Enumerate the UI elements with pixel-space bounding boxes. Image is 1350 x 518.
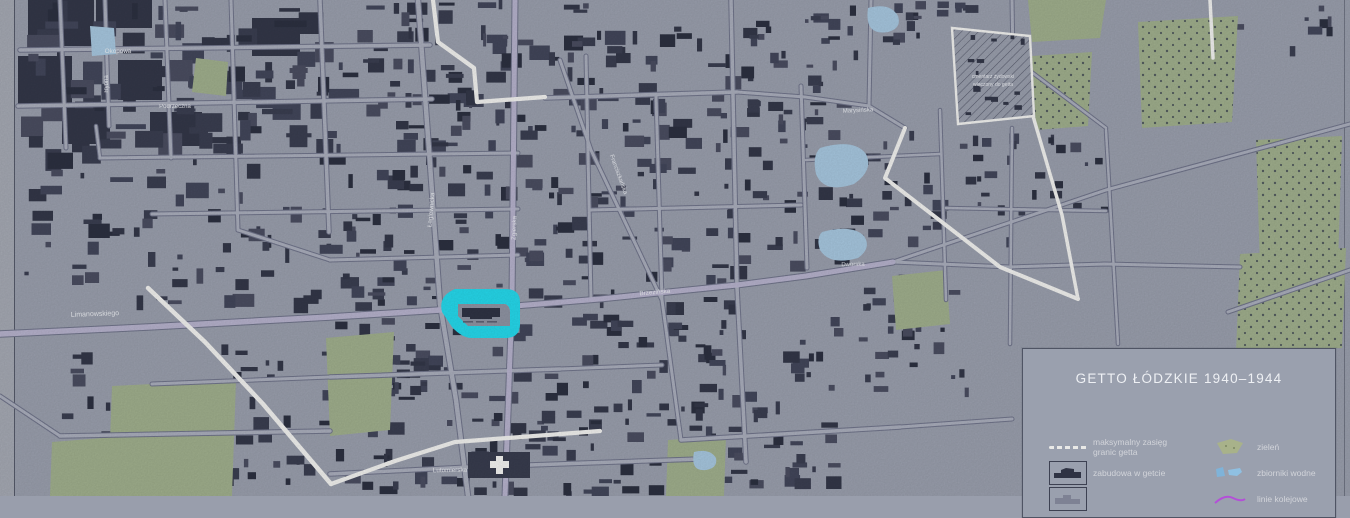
legend-grid: maksymalny zasięg granic getta zabudowa … [1023,434,1335,512]
legend-item-railway: linie kolejowe [1213,486,1350,512]
legend-item-buildings-outside [1049,486,1189,512]
legend-item-buildings-in-ghetto: zabudowa w getcie [1049,460,1189,486]
railway-line-icon [1213,492,1257,506]
building-in-ghetto-icon [1049,461,1093,485]
map-viewport[interactable]: cmentarz żydowskiwłączony do getta Okopo… [0,0,1350,496]
legend-item-water: zbiorniki wodne [1213,460,1350,486]
legend-item-ghetto-extent: maksymalny zasięg granic getta [1049,434,1189,460]
building-outline-icon [1049,487,1093,511]
legend-panel: GETTO ŁÓDZKIE 1940–1944 maksymalny zasię… [1022,348,1336,518]
legend-title: GETTO ŁÓDZKIE 1940–1944 [1023,371,1335,386]
water-patch-icon [1213,464,1257,482]
green-patch-icon [1213,437,1257,457]
ghetto-extent-dashed-line-icon [1049,446,1093,449]
legend-item-green: zieleń [1213,434,1350,460]
